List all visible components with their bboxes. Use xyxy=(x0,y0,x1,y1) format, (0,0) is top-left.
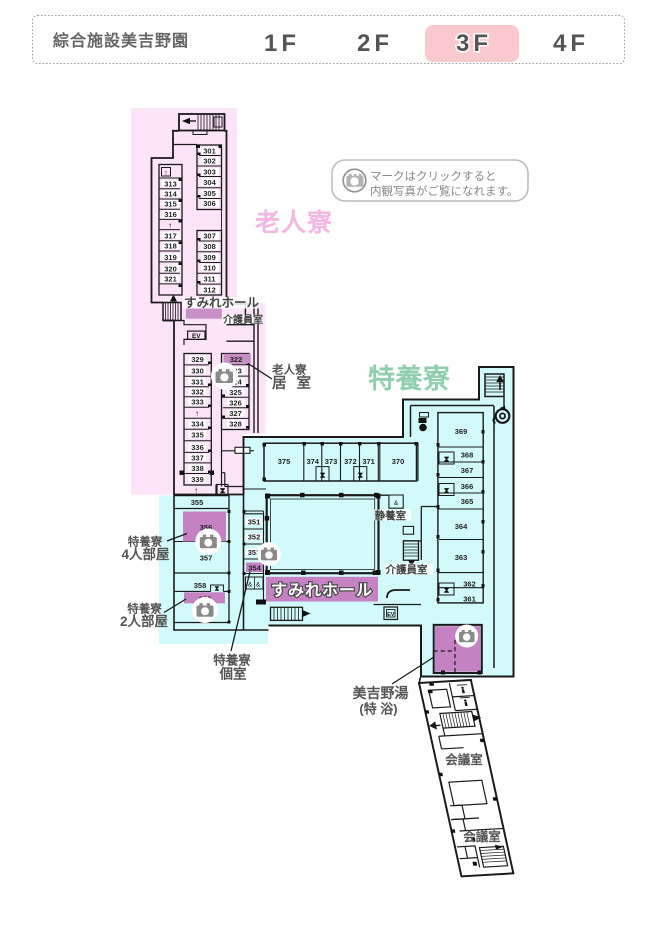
svg-text:322: 322 xyxy=(230,355,243,364)
svg-text:美吉野湯: 美吉野湯 xyxy=(353,685,409,701)
svg-text:363: 363 xyxy=(455,553,468,562)
svg-text:333: 333 xyxy=(191,398,204,407)
svg-text:304: 304 xyxy=(203,178,216,187)
svg-text:⧗: ⧗ xyxy=(220,486,226,495)
svg-text:314: 314 xyxy=(164,190,177,199)
svg-text:⧗: ⧗ xyxy=(444,586,450,595)
svg-text:355: 355 xyxy=(191,498,204,507)
svg-text:319: 319 xyxy=(164,253,177,262)
svg-text:マークはクリックすると: マークはクリックすると xyxy=(370,170,497,183)
svg-text:337: 337 xyxy=(191,454,204,463)
svg-text:317: 317 xyxy=(164,232,177,241)
svg-text:会議室: 会議室 xyxy=(463,829,501,844)
svg-text:330: 330 xyxy=(191,367,204,376)
svg-text:369: 369 xyxy=(455,427,468,436)
svg-text:↑: ↑ xyxy=(168,221,172,230)
svg-text:357: 357 xyxy=(200,554,213,563)
svg-text:⧗: ⧗ xyxy=(215,586,220,593)
svg-text:すみれホール: すみれホール xyxy=(271,582,373,600)
svg-text:306: 306 xyxy=(203,199,216,208)
svg-text:338: 338 xyxy=(191,464,204,473)
svg-text:366: 366 xyxy=(461,482,474,491)
svg-text:303: 303 xyxy=(203,168,216,177)
svg-text:336: 336 xyxy=(191,443,204,452)
svg-text:302: 302 xyxy=(203,157,216,166)
svg-text:321: 321 xyxy=(164,275,177,284)
svg-text:361: 361 xyxy=(463,595,476,604)
svg-text:368: 368 xyxy=(461,451,474,460)
svg-text:⧗: ⧗ xyxy=(320,471,326,480)
svg-text:325: 325 xyxy=(229,388,242,397)
svg-text:329: 329 xyxy=(191,355,204,364)
svg-text:2F: 2F xyxy=(357,30,393,57)
svg-text:&: & xyxy=(394,500,399,507)
svg-text:2人部屋: 2人部屋 xyxy=(120,613,169,629)
svg-text:313: 313 xyxy=(164,180,177,189)
svg-text:315: 315 xyxy=(164,200,177,209)
svg-text:↑: ↑ xyxy=(195,409,199,418)
svg-text:305: 305 xyxy=(203,189,216,198)
svg-text:371: 371 xyxy=(362,457,375,466)
svg-text:367: 367 xyxy=(461,466,474,475)
svg-text:内観写真がご覧になれます。: 内観写真がご覧になれます。 xyxy=(370,184,518,198)
svg-text:362: 362 xyxy=(463,580,476,589)
svg-text:静養室: 静養室 xyxy=(375,509,407,522)
svg-text:EV: EV xyxy=(192,333,201,340)
svg-text:374: 374 xyxy=(306,457,319,466)
svg-text:365: 365 xyxy=(461,497,474,506)
svg-text:364: 364 xyxy=(455,522,468,531)
svg-text:331: 331 xyxy=(191,378,204,387)
svg-text:老人寮: 老人寮 xyxy=(271,363,307,377)
svg-text:370: 370 xyxy=(392,457,405,466)
svg-text:354: 354 xyxy=(248,564,261,573)
svg-text:居 室: 居 室 xyxy=(272,374,314,392)
svg-text:⧗: ⧗ xyxy=(444,486,450,495)
svg-text:特養寮: 特養寮 xyxy=(368,363,451,394)
svg-text:310: 310 xyxy=(203,264,216,273)
svg-text:すみれホール: すみれホール xyxy=(184,296,260,310)
svg-text:4人部屋: 4人部屋 xyxy=(121,546,170,562)
svg-text:375: 375 xyxy=(278,457,291,466)
svg-text:326: 326 xyxy=(229,399,242,408)
svg-text:328: 328 xyxy=(229,420,242,429)
svg-text:307: 307 xyxy=(203,232,216,241)
svg-text:⧗: ⧗ xyxy=(357,471,363,480)
svg-text:373: 373 xyxy=(325,457,338,466)
svg-text:312: 312 xyxy=(203,286,216,295)
svg-text:332: 332 xyxy=(191,388,204,397)
svg-text:介護員室: 介護員室 xyxy=(385,563,428,576)
svg-text:介護員室: 介護員室 xyxy=(222,313,263,326)
svg-text:個室: 個室 xyxy=(219,666,247,682)
svg-text:3F: 3F xyxy=(456,30,492,57)
svg-text:1F: 1F xyxy=(264,30,300,57)
svg-text:311: 311 xyxy=(203,275,215,284)
svg-text:⧗: ⧗ xyxy=(444,455,450,464)
svg-text:EV: EV xyxy=(387,612,395,618)
svg-text:老人寮: 老人寮 xyxy=(255,208,333,237)
svg-text:特養寮: 特養寮 xyxy=(213,653,251,668)
svg-text:4F: 4F xyxy=(553,30,589,57)
svg-text:&: & xyxy=(248,582,253,589)
svg-text:372: 372 xyxy=(344,457,357,466)
svg-text:(特 浴): (特 浴) xyxy=(359,702,397,717)
svg-text:316: 316 xyxy=(164,210,177,219)
svg-text:308: 308 xyxy=(203,242,216,251)
svg-text:320: 320 xyxy=(164,265,177,274)
svg-text:351: 351 xyxy=(248,518,261,527)
svg-text:↑: ↑ xyxy=(164,170,168,177)
svg-text:&: & xyxy=(256,582,261,589)
svg-text:綜合施設美吉野園: 綜合施設美吉野園 xyxy=(53,31,189,50)
svg-text:352: 352 xyxy=(248,533,261,542)
svg-text:309: 309 xyxy=(203,253,216,262)
svg-text:会議室: 会議室 xyxy=(445,752,483,767)
svg-text:327: 327 xyxy=(229,409,242,418)
svg-text:358: 358 xyxy=(194,581,207,590)
svg-text:301: 301 xyxy=(203,147,216,156)
svg-text:318: 318 xyxy=(164,242,177,251)
svg-text:334: 334 xyxy=(191,420,204,429)
svg-text:335: 335 xyxy=(191,431,204,440)
svg-text:↑: ↑ xyxy=(194,486,198,495)
svg-text:339: 339 xyxy=(191,475,204,484)
